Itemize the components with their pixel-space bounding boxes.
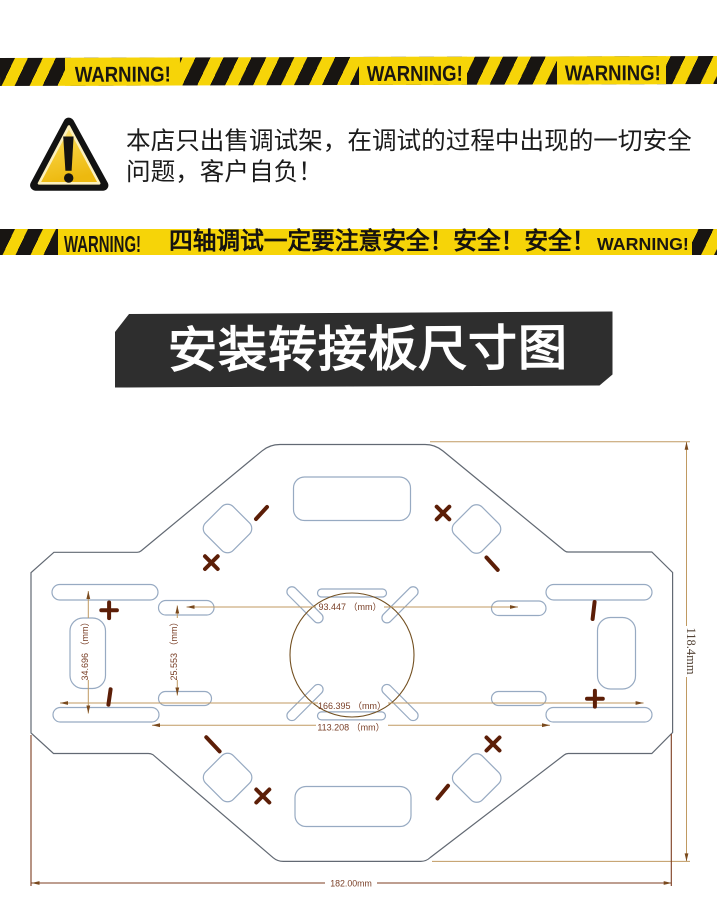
svg-text:118.4mm: 118.4mm: [684, 627, 698, 674]
svg-text:182.00mm: 182.00mm: [330, 879, 372, 889]
svg-text:25.553 （mm）: 25.553 （mm）: [169, 617, 179, 680]
svg-text:166.395 （mm）: 166.395 （mm）: [318, 701, 386, 711]
svg-text:34.696 （mm）: 34.696 （mm）: [80, 617, 90, 680]
svg-text:113.208 （mm）: 113.208 （mm）: [317, 723, 384, 733]
svg-text:93.447 （mm）: 93.447 （mm）: [318, 602, 381, 612]
